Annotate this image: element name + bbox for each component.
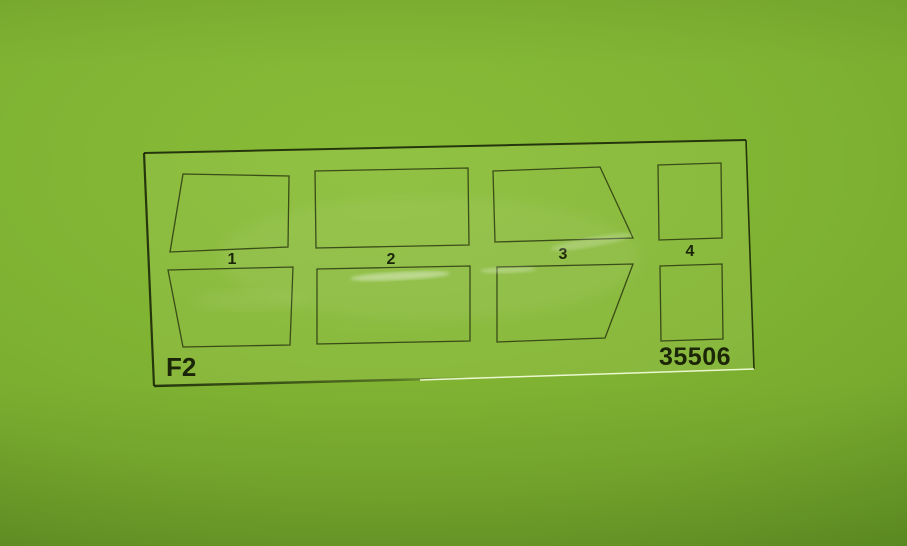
glare-streak-4 bbox=[195, 290, 305, 310]
kit-number-label: 35506 bbox=[659, 343, 731, 371]
clear-film-sheet-scene: 1 2 3 4 F2 35506 bbox=[0, 0, 907, 546]
sheet-code-label: F2 bbox=[166, 352, 196, 382]
part-number-label-1: 1 bbox=[228, 251, 237, 268]
photo-clear-parts-sheet: 1 2 3 4 F2 35506 bbox=[0, 0, 907, 546]
part-number-label-4: 4 bbox=[686, 243, 695, 260]
part-number-label-2: 2 bbox=[387, 251, 396, 268]
